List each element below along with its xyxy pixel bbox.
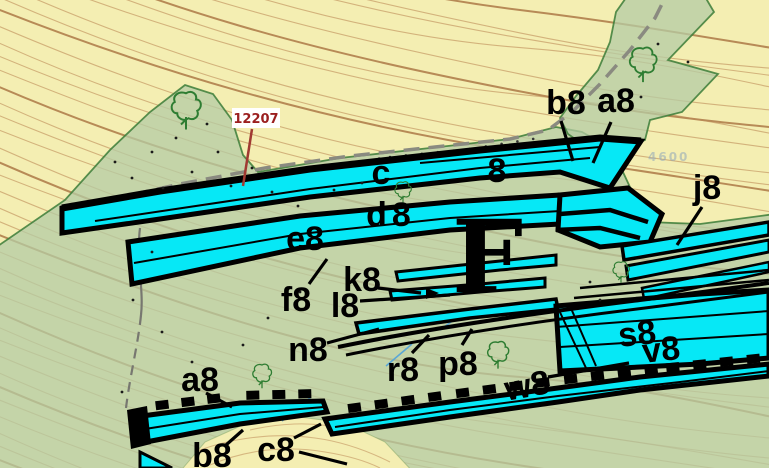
map-canvas[interactable]: c 8 d8 e8 b8 a8 j8 k8 f8 l8 n8 r8 p8 w8 … <box>0 0 769 468</box>
scrub-dot <box>191 171 194 174</box>
scrub-dot <box>161 331 164 334</box>
wall-tooth <box>456 388 470 399</box>
map-sheet-watermark: 4600 <box>648 150 689 164</box>
parcel-label-b8-bottom: b8 <box>192 437 232 468</box>
scrub-dot <box>242 344 245 347</box>
scrub-dot <box>657 43 660 46</box>
parcel-label-b8-top: b8 <box>546 84 586 122</box>
map-viewport[interactable]: c 8 d8 e8 b8 a8 j8 k8 f8 l8 n8 r8 p8 w8 … <box>0 0 769 468</box>
wall-tooth <box>428 391 442 402</box>
scrub-dot <box>151 151 154 154</box>
scrub-dot <box>251 167 254 170</box>
parcel-label-e8: e8 <box>286 220 324 258</box>
parcel-label-c8-bottom: c8 <box>257 431 295 468</box>
survey-callout-number: 12207 <box>233 112 278 127</box>
wall-tooth <box>155 400 169 411</box>
parcel-strip-a8-bottom-cap <box>127 406 151 449</box>
scrub-dot <box>640 96 643 99</box>
wall-tooth <box>693 359 707 369</box>
wall-tooth <box>720 356 734 366</box>
wall-tooth <box>482 384 496 395</box>
scrub-dot <box>599 299 602 302</box>
parcel-label-d8: d8 <box>366 196 416 234</box>
footpath-dot <box>516 140 519 143</box>
scrub-dot <box>589 281 592 284</box>
scrub-dot <box>162 187 165 190</box>
footpath-dot <box>532 138 535 141</box>
wall-tooth <box>746 354 760 364</box>
parcel-label-w8: w8 <box>501 363 553 408</box>
parcel-label-j8: j8 <box>692 169 721 207</box>
scrub-dot <box>333 189 336 192</box>
scrub-dot <box>206 123 209 126</box>
parcel-label-a8-top: a8 <box>597 82 635 120</box>
parcel-label-l8: l8 <box>331 287 359 325</box>
wall-tooth <box>374 399 388 410</box>
scrub-dot <box>175 137 178 140</box>
parcel-label-n8: n8 <box>288 331 328 369</box>
scrub-dot <box>361 182 364 185</box>
scrub-dot <box>267 317 270 320</box>
wall-tooth <box>298 389 311 398</box>
zone-letter-F: F <box>452 198 523 316</box>
scrub-dot <box>230 185 233 188</box>
scrub-dot <box>687 61 690 64</box>
parcel-label-a8-bottom: a8 <box>181 361 219 399</box>
scrub-dot <box>297 205 300 208</box>
scrub-dot <box>151 251 154 254</box>
parcel-label-f8: f8 <box>281 281 311 319</box>
wall-tooth <box>272 390 285 399</box>
parcel-label-c: c <box>372 154 391 192</box>
parcel-label-c8: 8 <box>488 152 507 190</box>
scrub-dot <box>271 191 274 194</box>
scrub-dot <box>121 391 124 394</box>
scrub-dot <box>217 151 220 154</box>
parcel-label-p8: p8 <box>438 345 478 383</box>
wall-tooth <box>401 395 415 406</box>
scrub-dot <box>131 177 134 180</box>
parcel-label-v8: v8 <box>640 329 682 371</box>
scrub-dot <box>114 161 117 164</box>
parcel-label-r8: r8 <box>387 351 419 389</box>
wall-tooth <box>347 402 361 413</box>
wall-tooth <box>617 367 631 377</box>
scrub-dot <box>132 299 135 302</box>
wall-tooth <box>246 391 259 400</box>
wall-tooth <box>590 371 604 381</box>
